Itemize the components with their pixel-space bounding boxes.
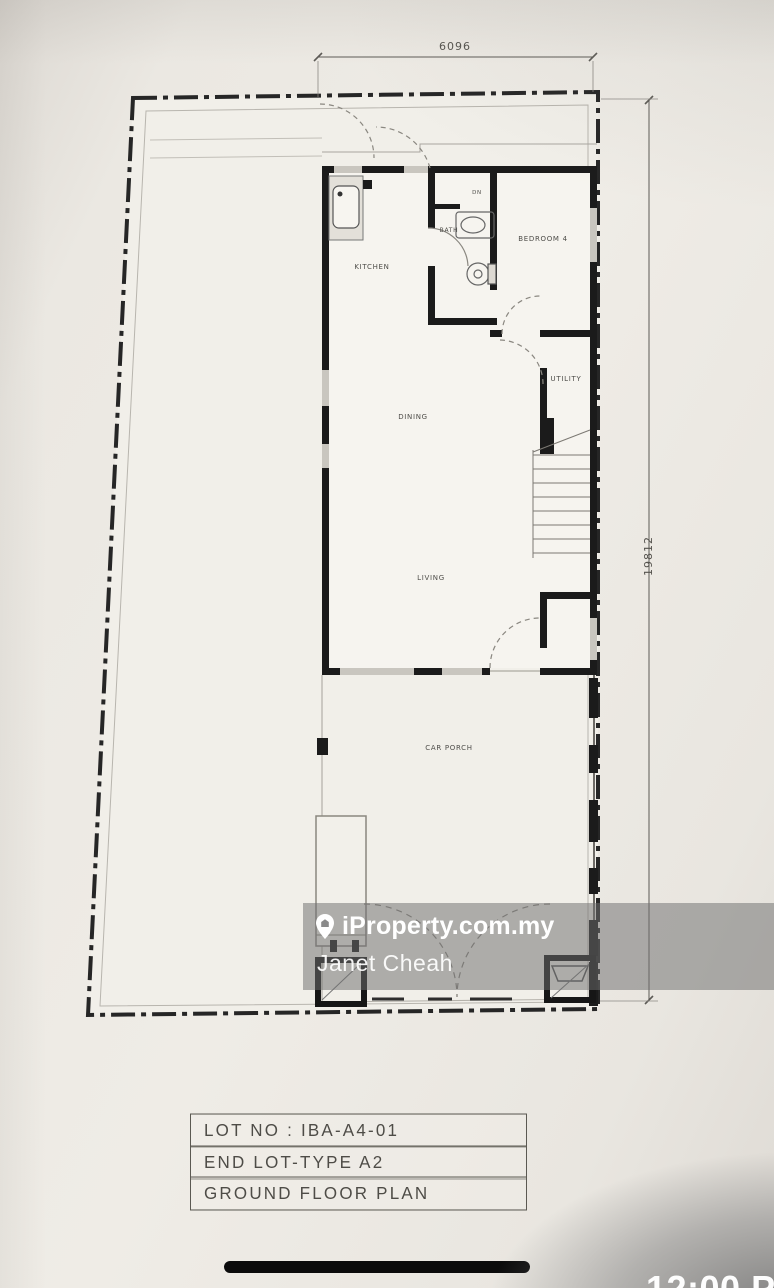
watermark-agent-name: Janet Cheah xyxy=(317,950,453,977)
room-label-bedroom4: BEDROOM 4 xyxy=(518,235,568,243)
floor-plan-drawing: 6096 19812 KITCHEN BATH DN BEDROOM 4 UTI… xyxy=(0,0,774,1288)
title-block: LOT NO : IBA-A4-01 END LOT-TYPE A2 GROUN… xyxy=(190,1114,527,1210)
titleblock-row-lot-type: END LOT-TYPE A2 xyxy=(190,1145,527,1179)
floorplan-photo-page: 6096 19812 KITCHEN BATH DN BEDROOM 4 UTI… xyxy=(0,0,774,1288)
room-label-living: LIVING xyxy=(417,574,445,582)
dimension-top-value: 6096 xyxy=(439,40,471,53)
toilet-tank xyxy=(488,264,496,284)
dimension-top xyxy=(314,53,597,97)
location-pin-icon xyxy=(315,913,335,941)
dimension-right-value: 19812 xyxy=(642,536,655,576)
room-label-utility: UTILITY xyxy=(551,375,582,383)
bottom-black-bar xyxy=(224,1261,530,1273)
watermark-brand-row: iProperty.com.my xyxy=(315,912,555,941)
watermark-brand: iProperty.com.my xyxy=(342,912,555,941)
titleblock-row-lot-no: LOT NO : IBA-A4-01 xyxy=(190,1114,527,1148)
porch-column xyxy=(317,738,328,755)
room-label-car-porch: CAR PORCH xyxy=(425,744,472,752)
room-label-dn: DN xyxy=(472,190,482,196)
stove xyxy=(363,180,372,189)
system-clock-partial: 12:00 PM xyxy=(646,1268,774,1288)
room-label-dining: DINING xyxy=(398,413,428,421)
kitchen-sink xyxy=(333,186,359,228)
watermark: iProperty.com.my Janet Cheah xyxy=(303,903,774,990)
room-label-kitchen: KITCHEN xyxy=(354,263,389,271)
faucet xyxy=(338,192,343,197)
room-label-bath: BATH xyxy=(440,227,459,234)
titleblock-row-plan-name: GROUND FLOOR PLAN xyxy=(190,1177,527,1211)
